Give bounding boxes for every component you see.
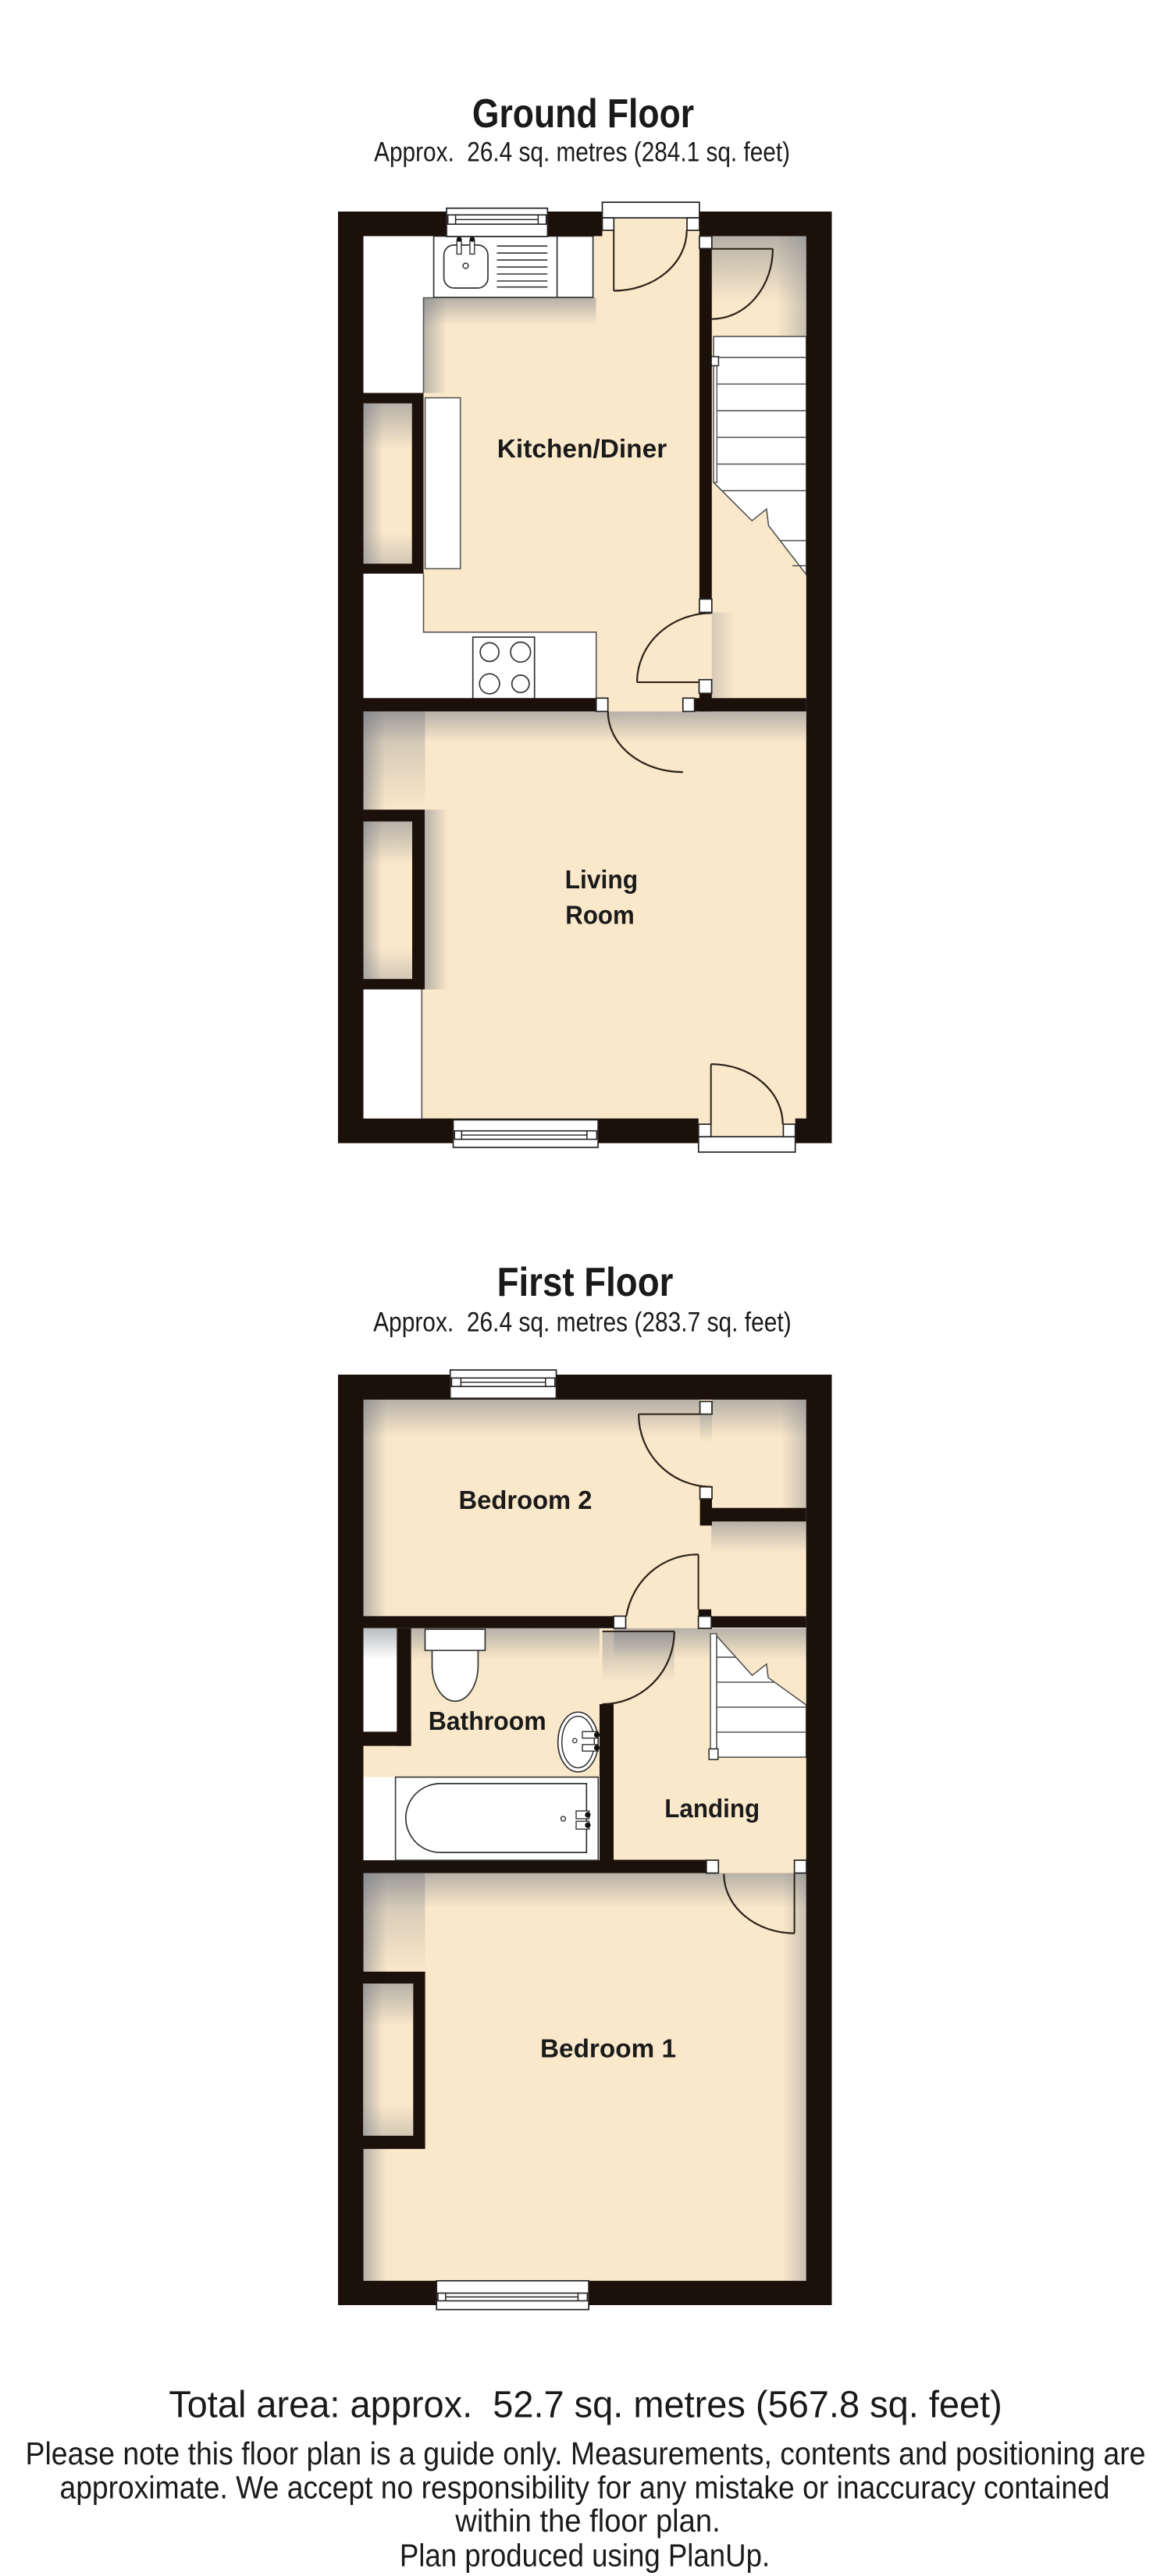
svg-text:Approx. 26.4 sq. metres (283.: Approx. 26.4 sq. metres (283.7 sq. feet) xyxy=(373,1308,792,1338)
svg-text:Ground Floor: Ground Floor xyxy=(472,91,694,137)
svg-text:within the floor plan.: within the floor plan. xyxy=(454,2503,720,2539)
svg-text:Bathroom: Bathroom xyxy=(429,1706,546,1735)
svg-text:Living: Living xyxy=(565,865,639,894)
svg-text:Bedroom 2: Bedroom 2 xyxy=(459,1485,593,1514)
svg-text:Kitchen/Diner: Kitchen/Diner xyxy=(497,434,667,463)
svg-text:Approx. 26.4 sq. metres (284.: Approx. 26.4 sq. metres (284.1 sq. feet) xyxy=(374,137,790,168)
svg-text:Total area: approx. 52.7 sq.: Total area: approx. 52.7 sq. metres (567… xyxy=(169,2385,1002,2426)
svg-text:approximate. We accept no resp: approximate. We accept no responsibility… xyxy=(60,2470,1110,2506)
svg-text:First Floor: First Floor xyxy=(497,1260,674,1305)
svg-text:Bedroom 1: Bedroom 1 xyxy=(540,2034,676,2063)
svg-text:Landing: Landing xyxy=(664,1794,760,1823)
svg-text:Plan produced using PlanUp.: Plan produced using PlanUp. xyxy=(400,2538,770,2574)
svg-text:Room: Room xyxy=(565,900,634,929)
svg-text:Please note this floor plan is: Please note this floor plan is a guide o… xyxy=(26,2435,1146,2471)
